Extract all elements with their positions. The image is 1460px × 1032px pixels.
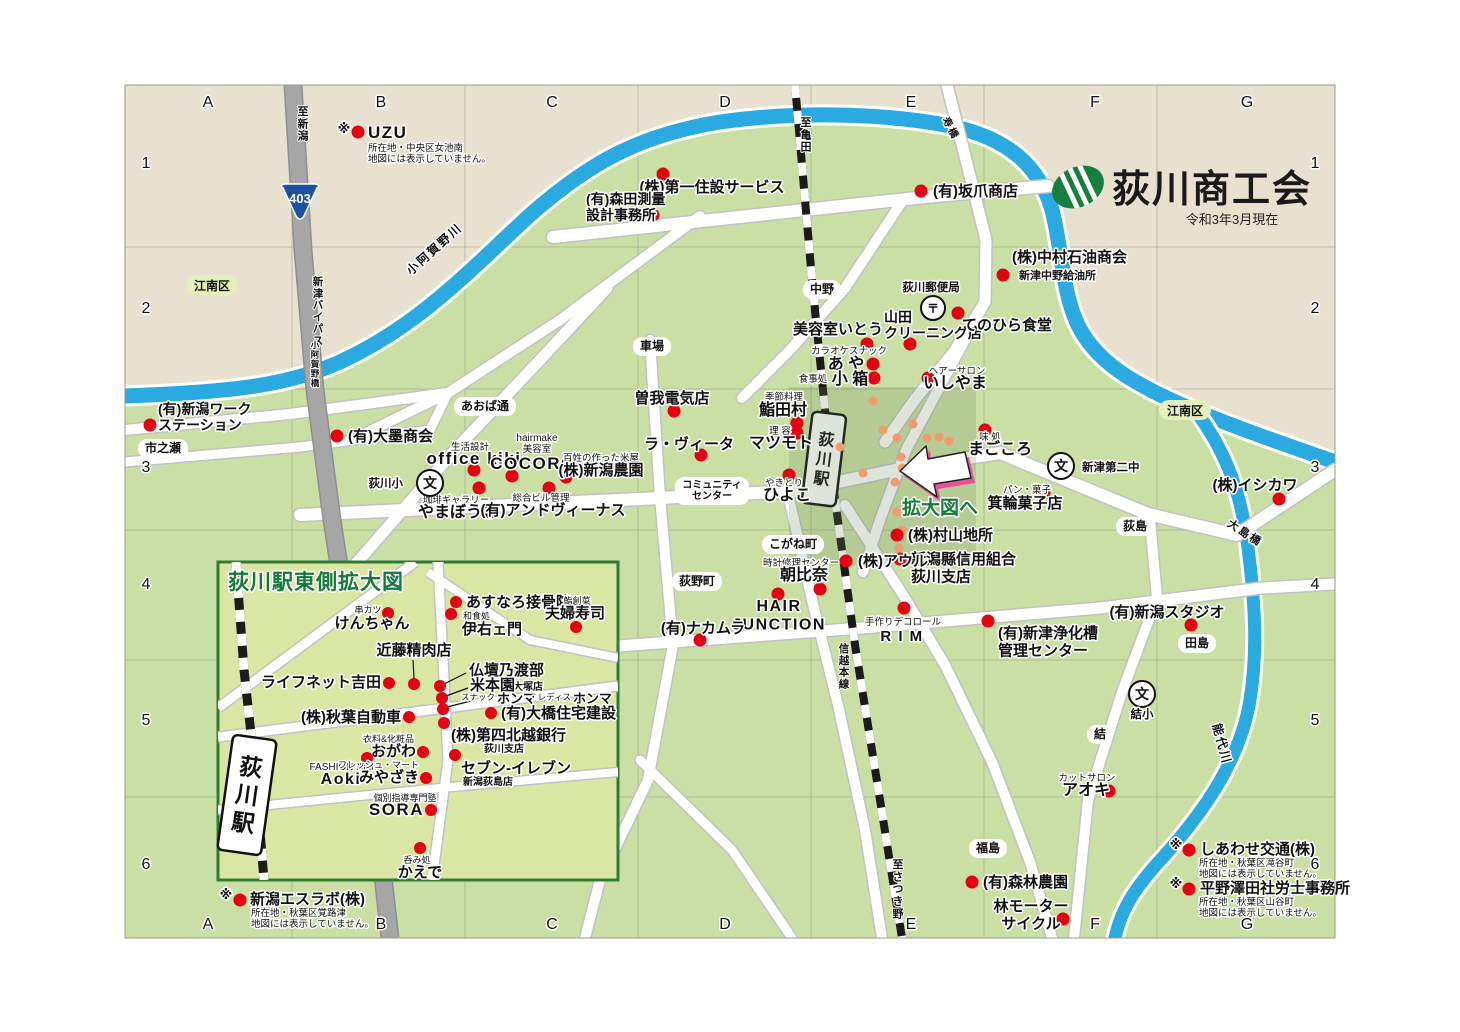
business-name: (有)アンドヴィーナス (481, 501, 626, 519)
business-dot (352, 126, 365, 139)
overlay-business-dot (909, 420, 918, 429)
business-dot (425, 804, 437, 816)
business-name: アオキ (1062, 781, 1110, 799)
business-dot (414, 842, 426, 854)
business-name: 管理センター (998, 641, 1088, 659)
place-pill: 中野 (803, 280, 841, 299)
school-name: 荻川小 (369, 476, 404, 490)
school-name: 新津第二中 (1082, 460, 1140, 474)
business-name: 林モーター (993, 897, 1068, 915)
business-name: 近藤精肉店 (376, 641, 451, 659)
business-name: 箕輪菓子店 (986, 494, 1062, 512)
overlay-business-dot (859, 469, 868, 478)
business-name: (有)森田測量 (586, 191, 665, 207)
grid-letter-bottom: F (1090, 916, 1100, 933)
post-office-name: 荻川郵便局 (902, 280, 960, 294)
business-name: 小 箱 (832, 369, 868, 388)
place-pill: あおば通 (454, 397, 516, 416)
as-of-date: 令和3年3月現在 (1186, 212, 1278, 227)
business-name: ライフネット吉田 (261, 673, 381, 691)
route-label: 信越本線 (838, 642, 850, 690)
business-dot (966, 876, 979, 889)
business-name: サイクル (1001, 915, 1060, 932)
business-dot (436, 692, 448, 704)
business-dot (868, 372, 881, 385)
school: 文結小 (1129, 681, 1155, 721)
place-pill: こがね町 (762, 535, 824, 554)
business-name: SORA (369, 800, 424, 819)
overlay-business-dot (891, 478, 900, 487)
district-name: 江南区 (194, 278, 230, 293)
business-prefix: hairmake (516, 433, 558, 444)
business-dot (1273, 493, 1286, 506)
place-name: 結 (1094, 726, 1106, 741)
business-dot (144, 419, 157, 432)
place-name: あおば通 (461, 398, 509, 413)
place-name: コミュニティ (682, 479, 741, 491)
business: 百姓の作った米屋(株)新潟農園 (559, 452, 644, 484)
school-symbol: 文 (423, 475, 438, 491)
business-name: (株)村山地所 (908, 526, 993, 544)
business-dot (915, 185, 928, 198)
note-text: 所在地・秋葉区滝谷町 (1199, 857, 1295, 869)
business-name: (株)中村石油商会 (1012, 248, 1127, 266)
place-pill: 田島 (1178, 634, 1216, 653)
business-dot (450, 596, 462, 608)
business-name: (株)秋葉自動車 (301, 708, 401, 726)
business-name: Aoki (321, 771, 362, 788)
district-pill: 江南区 (186, 275, 238, 295)
business: ヘアーサロンいしやま (922, 366, 987, 392)
school-symbol: 文 (1054, 458, 1069, 474)
note-text: 所在地・中央区女池南 (368, 142, 463, 154)
business-dot (473, 482, 486, 495)
grid-number-right: 6 (1311, 856, 1320, 873)
business-prefix: ・レディス (529, 692, 571, 702)
place-name: 荻野町 (679, 573, 715, 588)
grid-letter-bottom: D (719, 916, 731, 933)
business-name: けんちゃん (334, 615, 409, 632)
chamber-of-commerce-map: 荻川駅 拡大図へ 荻川駅串カツけんちゃんあすなろ接骨院和食処伊右ェ門鮨創菜夫婦寿… (0, 0, 1460, 1032)
post-office-symbol: 〒 (927, 302, 939, 316)
overlay-business-dot (895, 544, 904, 553)
grid-number-left: 2 (142, 300, 151, 317)
business: (株)秋葉自動車 (301, 708, 415, 726)
grid-number-right: 3 (1311, 459, 1320, 476)
grid-letter-top: C (546, 94, 558, 111)
business-dot (417, 746, 429, 758)
business-name: ステーション (158, 417, 242, 433)
business: カットサロンアオキ (1058, 773, 1115, 799)
business-dot (383, 677, 395, 689)
business: (有)新潟ワークステーション (144, 401, 252, 433)
inset-map: 荻川駅串カツけんちゃんあすなろ接骨院和食処伊右ェ門鮨創菜夫婦寿司近藤精肉店ライフ… (217, 562, 618, 881)
overlay-business-dot (869, 397, 878, 406)
business-name: UZU (368, 123, 407, 142)
overlay-business-dot (945, 437, 954, 446)
business-name: 朝比奈 (780, 565, 829, 584)
business-name: (有)大墨商会 (348, 427, 433, 445)
overlay-business-dot (893, 434, 902, 443)
business-dot (1183, 844, 1196, 857)
route-number: 403 (289, 191, 311, 206)
business-dot (420, 772, 432, 784)
business-dot (982, 615, 995, 628)
business-name: 設計事務所 (586, 207, 656, 223)
business-prefix: 串カツ (354, 605, 381, 615)
business-name: 美容室いとう (793, 320, 883, 338)
business-name: (有)大橋住宅建設 (501, 704, 617, 722)
grid-letter-top: E (906, 94, 917, 111)
grid-letter-top: F (1090, 94, 1100, 111)
business-dot (434, 680, 446, 692)
school-name: 結小 (1131, 707, 1154, 721)
route-label: 至亀田 (801, 116, 812, 154)
business-name: 鮨田村 (759, 400, 807, 419)
business-dot (840, 555, 853, 568)
grid-number-right: 4 (1311, 576, 1320, 593)
place-name: センター (692, 490, 732, 502)
place-name: 荻島 (1123, 518, 1147, 533)
business: ライフネット吉田 (261, 673, 395, 691)
business-prefix: 食事処 (799, 373, 828, 385)
business-prefix: 新津中野給油所 (1019, 268, 1096, 282)
business-dot (891, 529, 904, 542)
enlarge-link-label: 拡大図へ (902, 496, 978, 519)
grid-letter-top: B (376, 94, 387, 111)
overlay-business-dot (893, 508, 902, 517)
grid-number-right: 5 (1311, 712, 1320, 729)
business-name: (有)新潟ワーク (158, 401, 251, 417)
business: 林モーターサイクル (993, 897, 1069, 932)
business-dot (331, 430, 344, 443)
business-name: しあわせ交通(株) (1200, 840, 1315, 858)
note-asterisk: ※ (338, 121, 351, 136)
place-name: 田島 (1185, 635, 1209, 650)
business-dot (570, 621, 582, 633)
grid-letter-bottom: E (906, 916, 917, 933)
business-name: ラ・ヴィータ (644, 435, 734, 453)
overlay-business-dot (923, 434, 932, 443)
business-name: 新潟エスラボ(株) (250, 890, 365, 908)
note-text: 地図には表示していません。 (368, 153, 491, 165)
grid-number-left: 3 (142, 459, 151, 476)
overlay-business-dot (836, 443, 845, 452)
business-name: ホンマ (573, 691, 612, 706)
place-name: こがね町 (769, 536, 817, 551)
route-label: 至さつき野 (893, 858, 904, 920)
place-pill: 結 (1087, 725, 1113, 744)
route-label: 小阿賀野橋 (310, 340, 320, 388)
grid-number-left: 5 (142, 712, 151, 729)
place-pill: コミュニティセンター (675, 477, 749, 505)
business-dot (814, 583, 827, 596)
business-prefix: 和食処 (463, 610, 490, 621)
district-pill: 江南区 (1159, 400, 1211, 420)
business-name: てのひら食堂 (962, 316, 1052, 334)
business-name: マツモト (749, 435, 813, 452)
business-dot (403, 711, 415, 723)
map-page: 荻川駅 拡大図へ 荻川駅串カツけんちゃんあすなろ接骨院和食処伊右ェ門鮨創菜夫婦寿… (0, 0, 1460, 1032)
district-name: 江南区 (1167, 403, 1203, 418)
business: (有)森田測量設計事務所 (586, 191, 665, 223)
school-symbol: 文 (1135, 686, 1150, 702)
business-dot (485, 707, 497, 719)
business: (有)大橋住宅建設 (485, 704, 617, 722)
grid-letter-top: G (1241, 94, 1253, 111)
grid-letter-bottom: G (1241, 916, 1253, 933)
business-name: (株)イシカワ (1213, 476, 1298, 494)
grid-letter-top: D (719, 94, 731, 111)
grid-number-left: 6 (142, 856, 151, 873)
note-text: 地図には表示していません。 (1199, 868, 1322, 880)
place-name: 市之瀬 (145, 440, 181, 455)
note-text: 所在地・秋葉区山谷町 (1199, 896, 1295, 908)
business-name: いしやま (923, 374, 987, 392)
grid-number-left: 4 (142, 576, 151, 593)
overlay-business-dot (935, 433, 944, 442)
note-text: 所在地・秋葉区覚路津 (251, 907, 347, 919)
route-label: 至新潟 (298, 105, 309, 143)
business-name: (株)アウル (858, 552, 928, 570)
inset-map-title: 荻川駅東側拡大図 (228, 570, 404, 594)
business-dot (997, 269, 1010, 282)
business-name: ひよこ (763, 486, 811, 504)
business-name: まごころ (968, 439, 1032, 458)
business-name: みやざき (359, 768, 419, 786)
business-dot (438, 717, 450, 729)
overlay-business-dot (897, 453, 906, 462)
business-dot (1183, 883, 1196, 896)
business-name: 伊右ェ門 (461, 620, 522, 638)
business-dot (437, 703, 449, 715)
grid-letter-bottom: A (203, 916, 214, 933)
grid-letter-top: A (203, 94, 214, 111)
business-name: (株)第四北越銀行 (451, 726, 566, 744)
business-name: (有)新津浄化槽 (998, 624, 1098, 642)
place-name: 中野 (810, 281, 834, 296)
business-prefix: スナック (461, 692, 495, 702)
business-name: R I M (880, 628, 923, 645)
business-name: 夫婦寿司 (545, 604, 605, 622)
grid-letter-bottom: C (546, 916, 558, 933)
business-name: 山田 (884, 309, 912, 325)
business-dot (445, 608, 457, 620)
place-pill: 福島 (969, 839, 1007, 858)
note-asterisk: ※ (220, 887, 233, 902)
business-dot (234, 894, 247, 907)
business-name: HAIR (756, 598, 801, 615)
business-name: 平野澤田社労士事務所 (1200, 879, 1350, 897)
business-prefix: 手作りデコロール (865, 616, 942, 628)
overlay-business-dot (879, 426, 888, 435)
place-pill: 荻野町 (672, 572, 722, 591)
business-name: おがわ (371, 742, 416, 760)
grid-number-left: 1 (142, 155, 151, 172)
grid-number-right: 2 (1311, 300, 1320, 317)
business-dot (449, 749, 461, 761)
inset-title-layer: 荻川駅東側拡大図 (228, 570, 404, 594)
place-name: 福島 (975, 840, 1000, 855)
business-name: セブン-イレブン (461, 759, 571, 777)
business-name: (有)坂爪商店 (933, 182, 1018, 200)
place-name: 車場 (640, 338, 664, 353)
place-pill: 市之瀬 (138, 439, 188, 458)
org-title: 荻川商工会 (1112, 169, 1312, 211)
place-pill: 荻島 (1116, 517, 1154, 536)
business-name: (株)新潟農園 (559, 461, 644, 479)
business-name: (有)新潟スタジオ (1110, 603, 1225, 621)
business-name: (有)ナカムラ (661, 619, 745, 637)
business-dot (898, 602, 911, 615)
note-asterisk: ※ (1170, 837, 1183, 852)
note-text: 地図には表示していません。 (1199, 907, 1322, 919)
grid-letter-bottom: B (376, 916, 387, 933)
business-name: かえで (398, 864, 443, 881)
business-name: (有)森林農園 (983, 873, 1068, 891)
business-dot (408, 678, 420, 690)
note-asterisk: ※ (1170, 876, 1183, 891)
business-dot (867, 358, 880, 371)
place-pill: 車場 (633, 337, 671, 356)
business-name: 曽我電気店 (634, 389, 709, 407)
note-text: 地図には表示していません。 (251, 918, 374, 930)
business-name: JUNCTION (732, 616, 826, 633)
route-label: 新津バイパス (313, 275, 324, 347)
